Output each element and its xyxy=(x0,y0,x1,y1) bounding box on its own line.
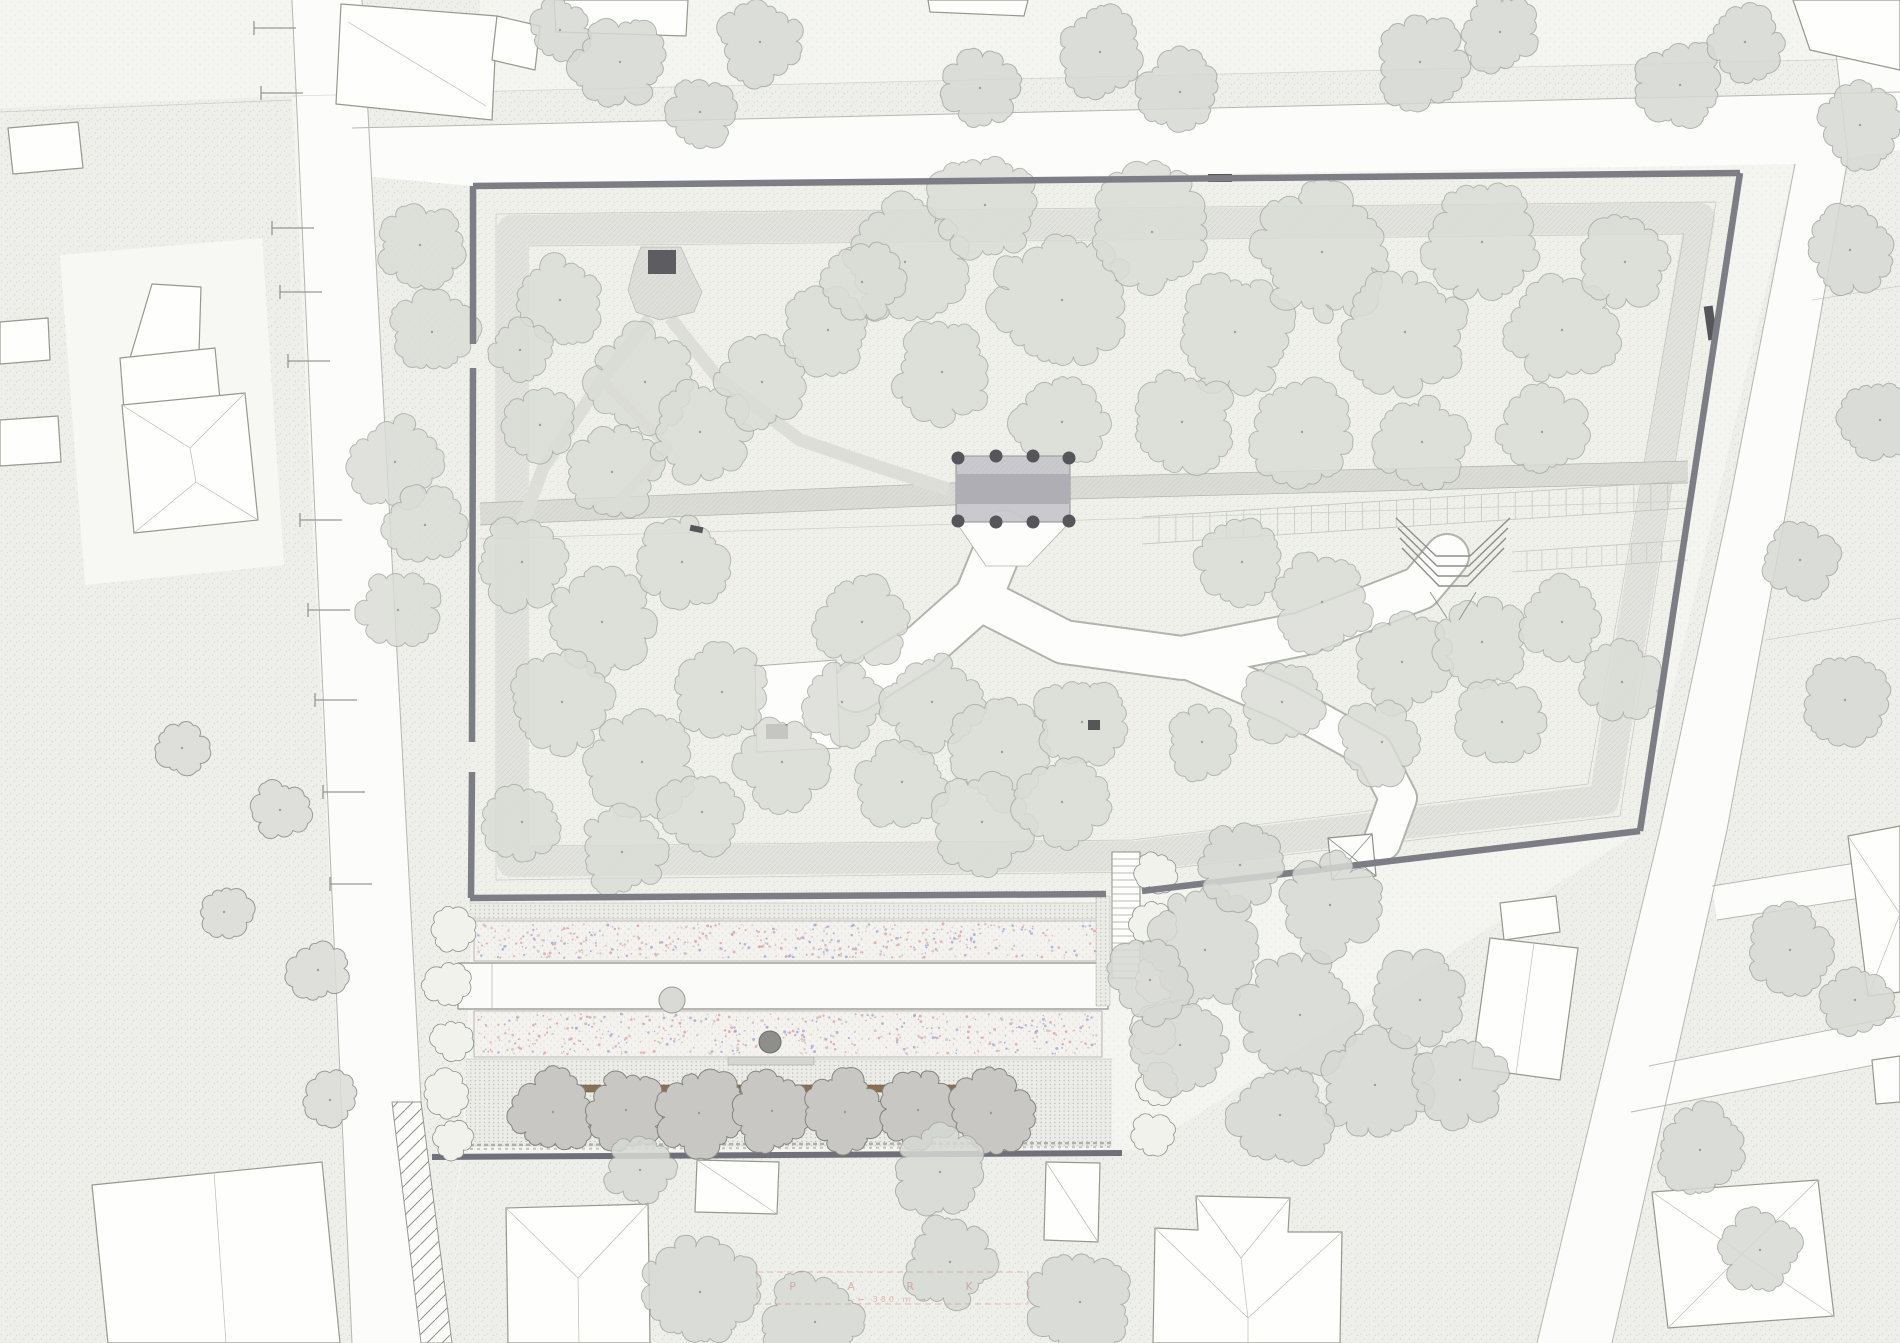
tree xyxy=(1027,1254,1130,1343)
building xyxy=(0,318,50,364)
annotation-dimension: ← 380 m → xyxy=(857,1295,928,1304)
building xyxy=(92,1162,340,1343)
garden-walk-white xyxy=(458,963,1108,1009)
table xyxy=(728,1057,814,1065)
building xyxy=(122,393,258,533)
pavilion-column xyxy=(990,450,1003,463)
building xyxy=(1872,1056,1900,1104)
tree xyxy=(1034,682,1128,766)
fountain xyxy=(759,1031,781,1053)
pavilion-column xyxy=(1063,515,1076,528)
site-plan-canvas: P A R K← 380 m → xyxy=(0,0,1900,1343)
pavilion-column xyxy=(1027,450,1040,463)
building xyxy=(1500,896,1560,940)
building xyxy=(0,416,61,466)
stair-side-walk xyxy=(1096,896,1110,1006)
pavilion-column xyxy=(990,516,1003,529)
pavilion-column xyxy=(952,452,965,465)
pavilion-roof-hatch xyxy=(956,456,1070,474)
pavilion-band xyxy=(956,474,1070,504)
gate-marker xyxy=(1088,720,1100,730)
park-wall xyxy=(471,772,472,898)
terrace-edge-wall xyxy=(432,1153,1122,1157)
terrace-walk xyxy=(470,903,1106,919)
plan-layers: P A R K← 380 m → xyxy=(0,0,1900,1343)
flower-bed xyxy=(474,1011,1102,1057)
park-wall xyxy=(470,894,1106,898)
building xyxy=(8,122,83,174)
pavilion-column xyxy=(1027,516,1040,529)
annotation-title: P A R K xyxy=(789,1280,997,1293)
site-plan: P A R K← 380 m → xyxy=(0,0,1900,1343)
pavilion-column xyxy=(1063,452,1076,465)
plaza-platform xyxy=(648,250,676,274)
tree xyxy=(1455,680,1547,763)
building xyxy=(336,4,497,120)
fountain-basin xyxy=(659,987,685,1013)
park-wall xyxy=(472,368,473,742)
pavilion-column xyxy=(952,515,965,528)
